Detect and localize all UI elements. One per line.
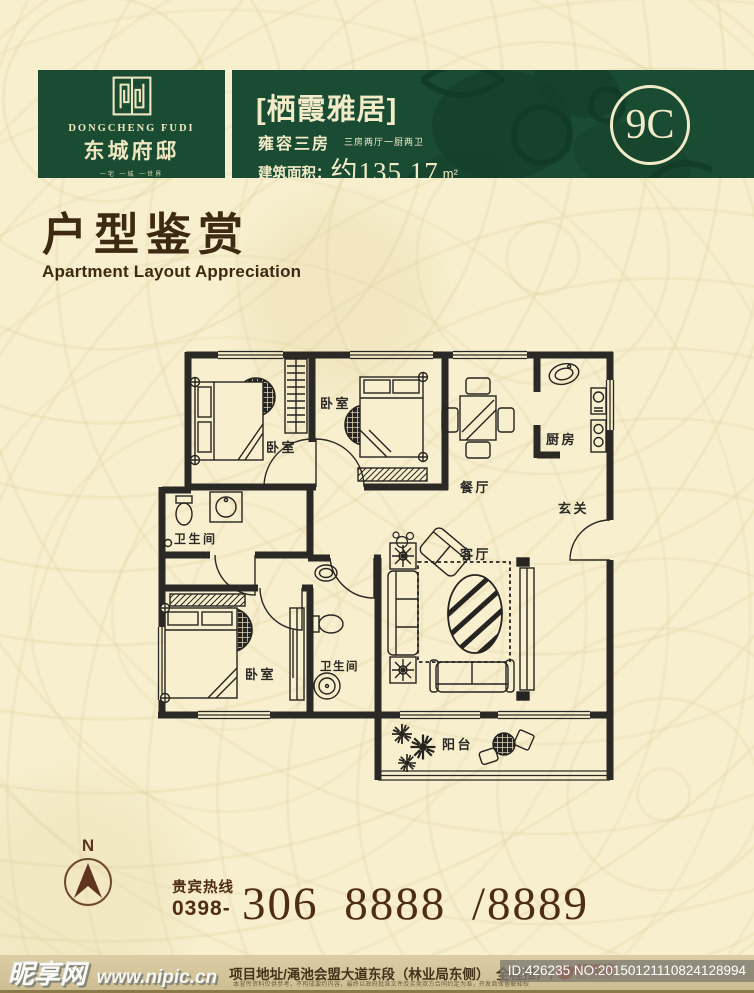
room-label: 阳台	[442, 737, 473, 752]
room-label: 客厅	[460, 547, 491, 562]
hotline-left: 贵宾热线 0398-	[172, 876, 234, 927]
balcony-table-icon	[493, 733, 515, 755]
room-label: 餐厅	[459, 480, 491, 495]
plant-icon	[392, 724, 412, 744]
footer-bar: 昵享网 www.nipic.cn 项目地址/渑池会盟大道东段（林业局东侧） 全程…	[0, 955, 754, 993]
watermark: 昵享网 www.nipic.cn	[8, 954, 217, 991]
plant-icon	[398, 754, 416, 772]
compass-north-label: N	[60, 836, 116, 856]
room-label: 卧室	[320, 396, 351, 411]
compass-arrow-icon	[62, 856, 114, 908]
header-band: [栖霞雅居] 雍容三房 三房两厅一厨两卫 建筑面积：约135.17 m² 9C	[232, 70, 754, 178]
page-title-en: Apartment Layout Appreciation	[42, 262, 301, 282]
kitchen-sink-icon	[547, 360, 581, 387]
floorplan: 卧室 卧室 餐厅 厨房 玄关 客厅 卫生间 卧室 卫生间 阳台	[150, 330, 650, 800]
room-label: 卫生间	[320, 659, 359, 673]
page-title: 户型鉴赏	[42, 210, 301, 260]
brand-name-cn: 东城府邸	[38, 135, 225, 165]
bedroom-topmid-furniture	[345, 373, 428, 482]
poster-page: DONGCHENG FUDI 东城府邸 一宅 一城 一世界 [栖霞雅居] 雍容三…	[0, 0, 754, 993]
brand-tagline: 一宅 一城 一世界	[38, 169, 225, 178]
stool-icon	[513, 729, 534, 750]
hotline-number: 306 8888 /8889	[242, 882, 589, 927]
room-label: 玄关	[558, 501, 589, 516]
washer-icon	[314, 673, 340, 699]
maze-seal-icon	[38, 75, 225, 122]
bedroom-master-furniture	[161, 594, 305, 703]
project-title: [栖霞雅居]	[256, 86, 397, 128]
plant-icon	[411, 735, 436, 760]
brand-name-en: DONGCHENG FUDI	[38, 123, 225, 134]
toilet-icon	[176, 496, 192, 503]
side-table-lamp-icon	[390, 657, 416, 683]
hotline: 贵宾热线 0398- 306 8888 /8889	[172, 876, 589, 927]
loveseat-icon	[430, 660, 514, 692]
developer-logo-box: DONGCHENG FUDI 东城府邸 一宅 一城 一世界	[38, 70, 225, 178]
compass: N	[60, 836, 116, 913]
bed-icon	[360, 377, 423, 457]
room-label: 卫生间	[174, 531, 218, 546]
fine-print: 本宣传资料仅供参考，不构成要约内容，最终以政府批准文件及买卖双方合同约定为准，开…	[233, 979, 529, 988]
hotline-label: 贵宾热线	[172, 876, 234, 897]
dining-set-icon	[442, 378, 514, 458]
bed-icon	[165, 608, 237, 698]
watermark-site-url: www.nipic.cn	[96, 967, 217, 988]
stock-id-badge: ID:426235 NO:20150121110824128994	[500, 960, 754, 982]
area-unit: m²	[443, 166, 458, 178]
bathroom-second-fixtures	[312, 565, 343, 699]
radiator-icon	[358, 468, 427, 481]
watermark-site-name: 昵享网	[8, 959, 86, 989]
tv-cabinet-icon	[517, 558, 534, 700]
room-label: 厨房	[546, 432, 577, 447]
unit-code-badge: 9C	[610, 85, 690, 165]
section-heading: 户型鉴赏 Apartment Layout Appreciation	[42, 210, 301, 282]
room-label: 卧室	[245, 667, 276, 682]
area-label: 建筑面积：	[258, 166, 331, 178]
area-line: 建筑面积：约135.17 m²	[258, 150, 458, 178]
area-value: 约135.17	[331, 157, 439, 178]
hotline-prefix: 0398-	[172, 897, 234, 921]
room-label: 卧室	[266, 440, 297, 455]
sofa-icon	[388, 571, 418, 655]
radiator-icon	[170, 594, 245, 606]
layout-spec: 三房两厅一厨两卫	[344, 135, 424, 148]
